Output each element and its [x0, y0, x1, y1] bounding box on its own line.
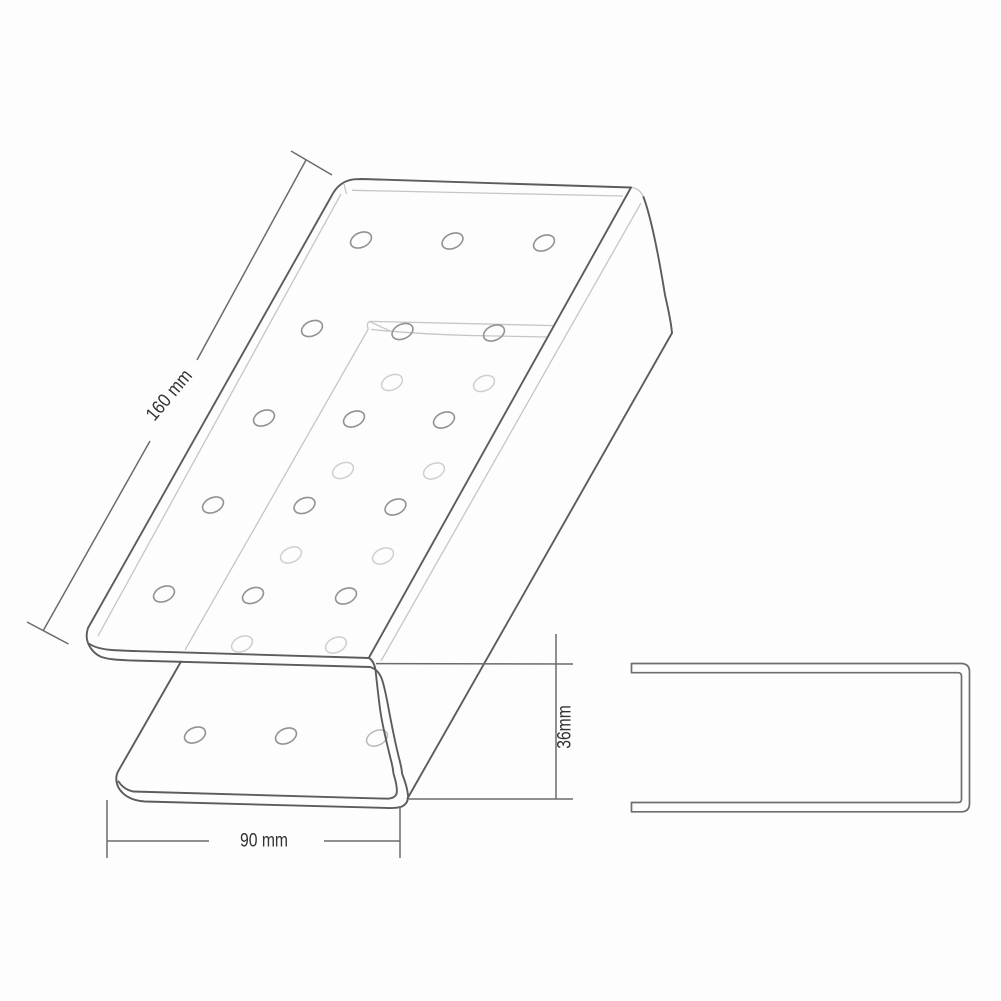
svg-text:160 mm: 160 mm [142, 366, 197, 425]
svg-text:90 mm: 90 mm [240, 831, 288, 852]
svg-text:36mm: 36mm [555, 705, 576, 749]
